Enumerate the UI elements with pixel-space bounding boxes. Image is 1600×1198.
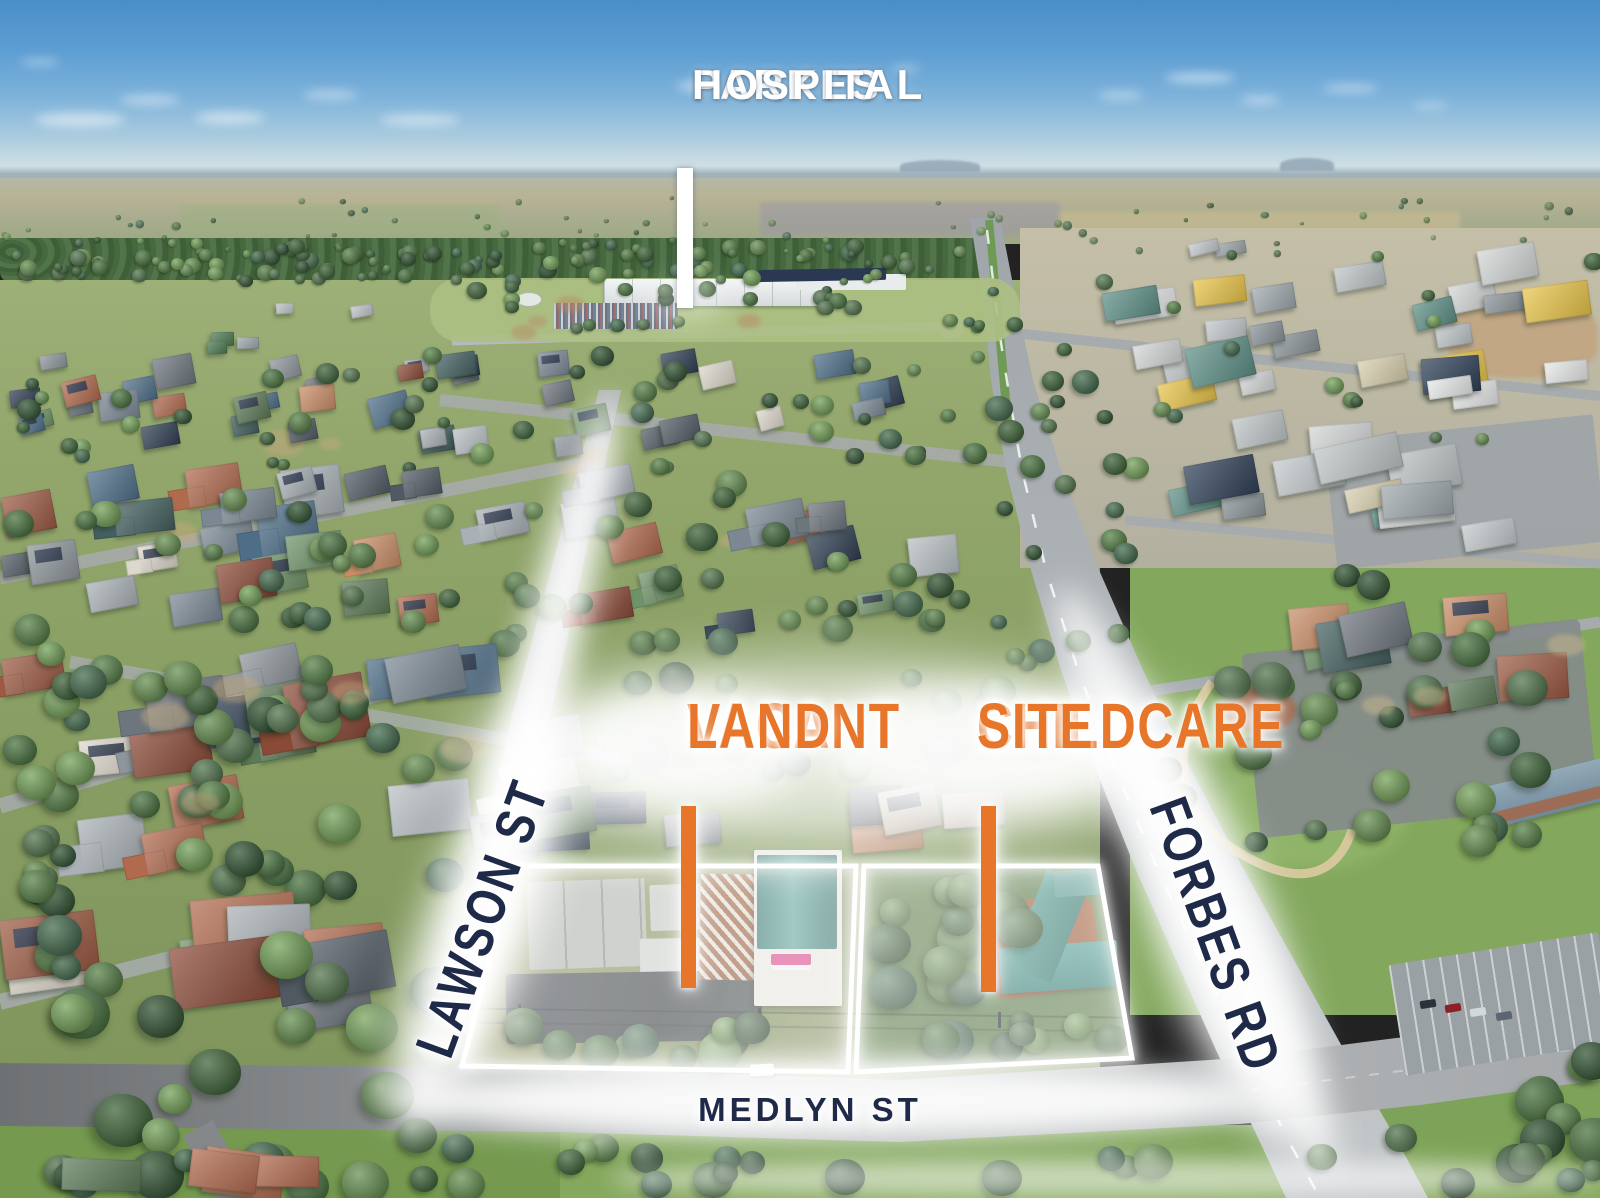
vacant-label-line2: LAND <box>687 698 832 755</box>
aerial-photo: PARKES HOSPITAL VACANTLAND CHILDCARESITE… <box>0 0 1600 1198</box>
hospital-label-line2: HOSPITAL <box>692 60 925 109</box>
property-boundaries <box>0 0 1600 1198</box>
medlyn-st-label: MEDLYN ST <box>698 1091 922 1129</box>
hospital-pointer-line <box>677 168 693 308</box>
vacant-land-pointer-line <box>681 806 696 988</box>
childcare-site-pointer-line <box>981 806 996 992</box>
childcare-label-line2: SITE <box>977 698 1094 755</box>
